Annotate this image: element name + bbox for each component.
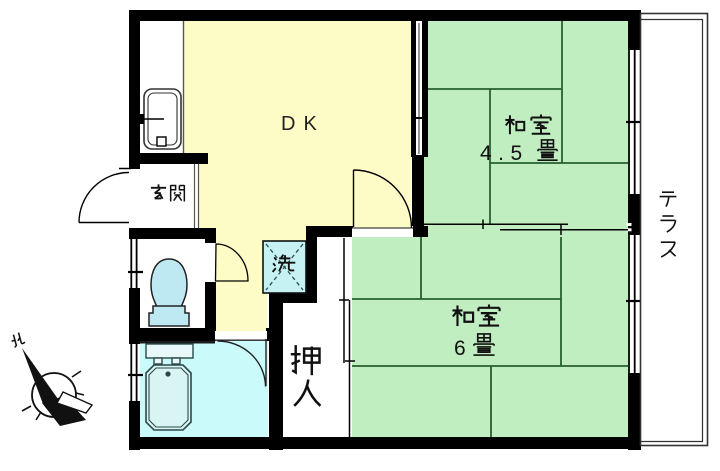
- svg-text:4.5: 4.5: [480, 142, 529, 165]
- svg-text:6: 6: [454, 337, 466, 360]
- svg-text:DK: DK: [281, 113, 325, 135]
